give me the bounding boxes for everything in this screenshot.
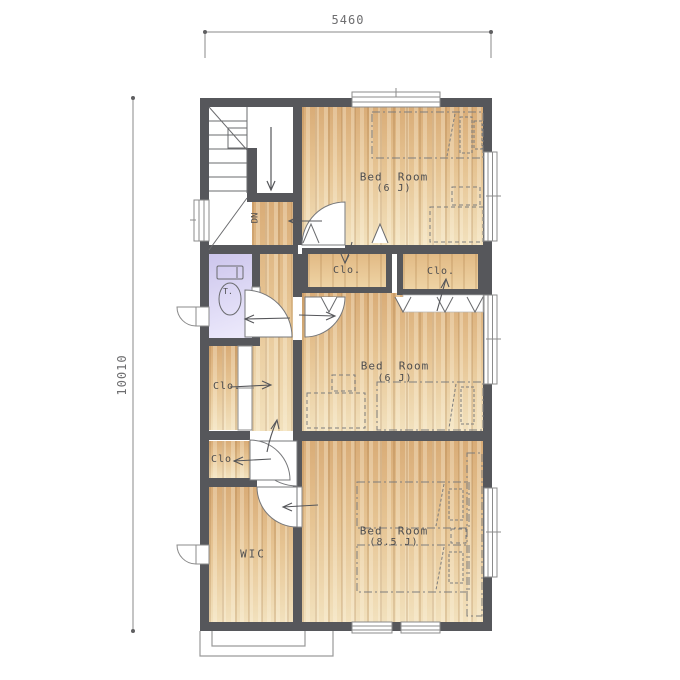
closet-lower-label: Clo. <box>211 455 239 465</box>
floor-plan: 5460 10010 DN Bed Room (6 J) Bed Room (6… <box>0 0 680 680</box>
dimension-width-label: 5460 <box>332 14 365 26</box>
bedroom-bottom-name: Bed Room <box>360 526 429 537</box>
window-right-bedroom-bottom <box>484 488 501 577</box>
desk-icon <box>307 393 365 428</box>
window-right-bedroom-middle <box>484 295 501 384</box>
windows <box>177 88 501 633</box>
closet-bedroom-top-label: Clo. <box>333 266 361 276</box>
window-left-stairs <box>190 200 209 241</box>
window-left-toilet-awning <box>177 307 209 326</box>
bed-icon <box>377 382 483 430</box>
window-bottom-1 <box>352 622 392 633</box>
dimension-height-label: 10010 <box>116 354 128 395</box>
stairs-down-arrow <box>267 127 275 190</box>
pillow-icon <box>449 552 463 583</box>
wic-label: WIC <box>240 549 266 560</box>
bedroom-top-name: Bed Room <box>360 172 429 183</box>
pillow-icon <box>449 489 463 520</box>
closet-hall-label: Clo. <box>213 382 241 392</box>
window-bottom-2 <box>401 622 440 633</box>
side-unit-icon <box>467 453 482 616</box>
window-top <box>352 88 440 107</box>
chair-icon <box>332 375 355 391</box>
window-left-wic-awning <box>177 545 209 564</box>
bedroom-bottom-size: (8.5 J) <box>369 538 418 548</box>
bedroom-middle-name: Bed Room <box>361 361 430 372</box>
door-arcs <box>245 202 345 527</box>
bed-icon <box>372 112 483 158</box>
bed-icon <box>357 545 469 592</box>
bedroom-middle-size: (6 J) <box>377 374 412 384</box>
bed-icon <box>357 482 469 528</box>
desk-icon <box>430 207 483 242</box>
window-right-bedroom-top <box>484 152 501 241</box>
balcony-outline <box>200 631 333 656</box>
toilet-door-arc <box>245 290 292 337</box>
nightstand-icon <box>451 529 466 543</box>
chair-icon <box>452 187 480 205</box>
toilet-label: T. <box>223 288 233 296</box>
pillow-icon <box>461 387 474 424</box>
closet-bedroom-middle-label: Clo. <box>427 267 455 277</box>
pillow-icon <box>460 117 472 153</box>
stairs <box>209 107 247 250</box>
bedroom-top-size: (6 J) <box>376 184 411 194</box>
plan-linework <box>0 0 680 680</box>
stairs-down-label: DN <box>252 213 261 224</box>
